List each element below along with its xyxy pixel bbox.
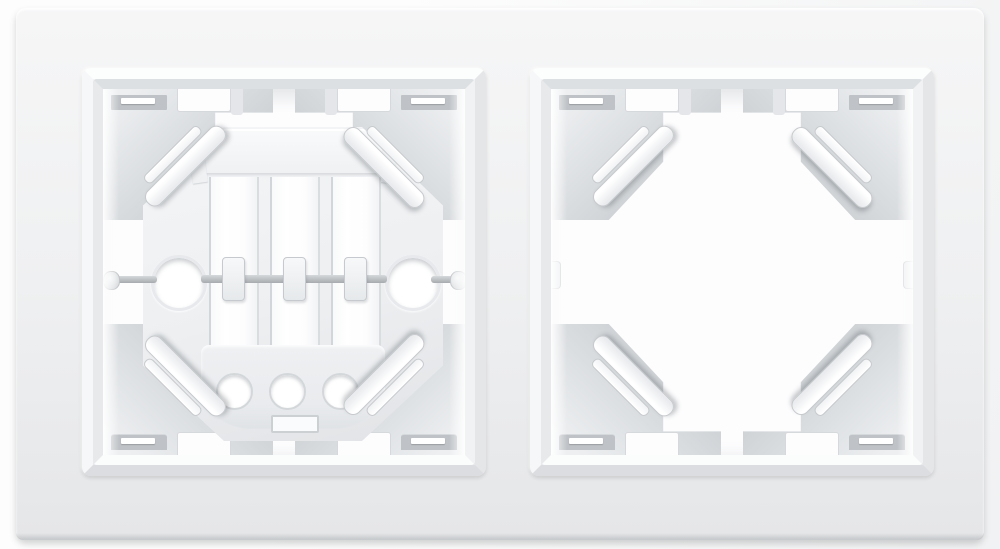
rod-clip [222,257,245,301]
side-tab [903,261,913,289]
rod-clip [344,257,367,301]
mounting-post [325,89,337,115]
mounting-slot [401,434,457,450]
window-cavity [551,89,913,455]
screw-hole-left [151,255,207,311]
slot-tab [121,438,155,444]
mounting-notch [785,89,839,112]
slot-tab [569,438,603,444]
axle-rod-end [103,271,120,290]
axle-rod-end [450,271,465,290]
mounting-notch [625,432,679,455]
slot-tab [859,98,893,104]
mounting-slot [849,95,905,110]
bottom-hole [269,373,306,410]
slot-tab [411,98,445,104]
screw-hole-right [385,255,441,311]
window-cavity [103,89,465,455]
side-tab [551,261,561,289]
slot-tab [569,98,603,104]
mounting-notch [337,89,391,112]
mounting-slot [401,95,457,110]
mounting-notch [177,89,231,112]
mounting-post [231,89,243,115]
mounting-post [679,89,691,115]
slot-tab [411,438,445,444]
right-frame-window [530,68,934,476]
mounting-slot [849,434,905,450]
mounting-slot [111,434,167,450]
mounting-notch [625,89,679,112]
rod-clip [283,257,306,301]
wall-frame-plate [16,8,984,540]
mounting-notch [785,432,839,455]
slot-tab [859,438,893,444]
mounting-slot [559,434,615,450]
plate-bottom-edge [16,533,984,540]
left-frame-window [82,68,486,476]
mounting-slot [559,95,615,110]
mounting-slot [111,95,167,110]
mounting-post [773,89,785,115]
cradle-bottom-slot [271,415,319,433]
product-photo-scene [0,0,1000,549]
slot-tab [121,98,155,104]
